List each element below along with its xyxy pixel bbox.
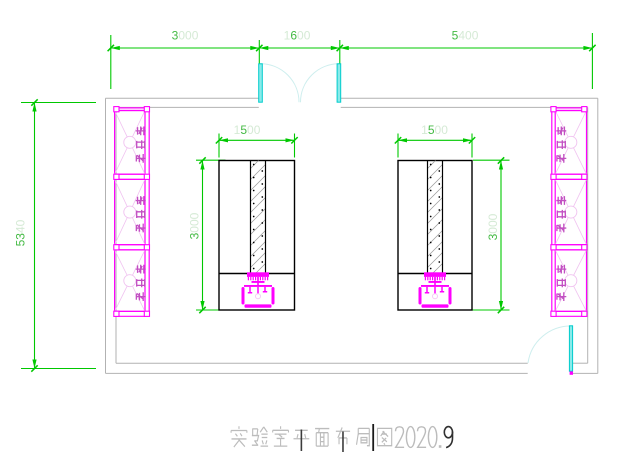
svg-text:5400: 5400 bbox=[452, 29, 479, 43]
svg-text:3000: 3000 bbox=[172, 29, 199, 43]
svg-text:3000: 3000 bbox=[486, 213, 500, 240]
svg-text:1500: 1500 bbox=[234, 123, 261, 137]
svg-text:1500: 1500 bbox=[421, 123, 448, 137]
svg-text:5340: 5340 bbox=[14, 219, 28, 246]
svg-text:3000: 3000 bbox=[188, 212, 202, 239]
svg-text:1600: 1600 bbox=[284, 29, 311, 43]
